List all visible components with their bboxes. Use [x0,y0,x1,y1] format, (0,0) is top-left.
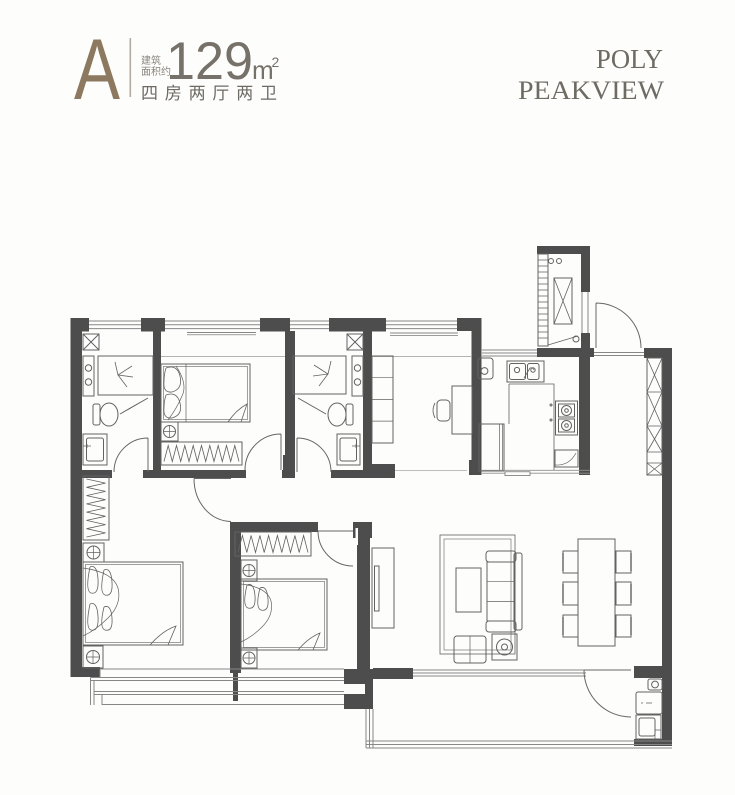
svg-text:m: m [252,55,274,85]
svg-text:A: A [74,22,121,118]
svg-text:2: 2 [272,54,280,70]
svg-text:四房两厅两卫: 四房两厅两卫 [141,84,284,103]
svg-text:POLY: POLY [596,44,663,74]
svg-text:PEAKVIEW: PEAKVIEW [518,76,664,105]
svg-text:建筑: 建筑 [141,54,161,67]
svg-text:129: 129 [166,32,253,91]
